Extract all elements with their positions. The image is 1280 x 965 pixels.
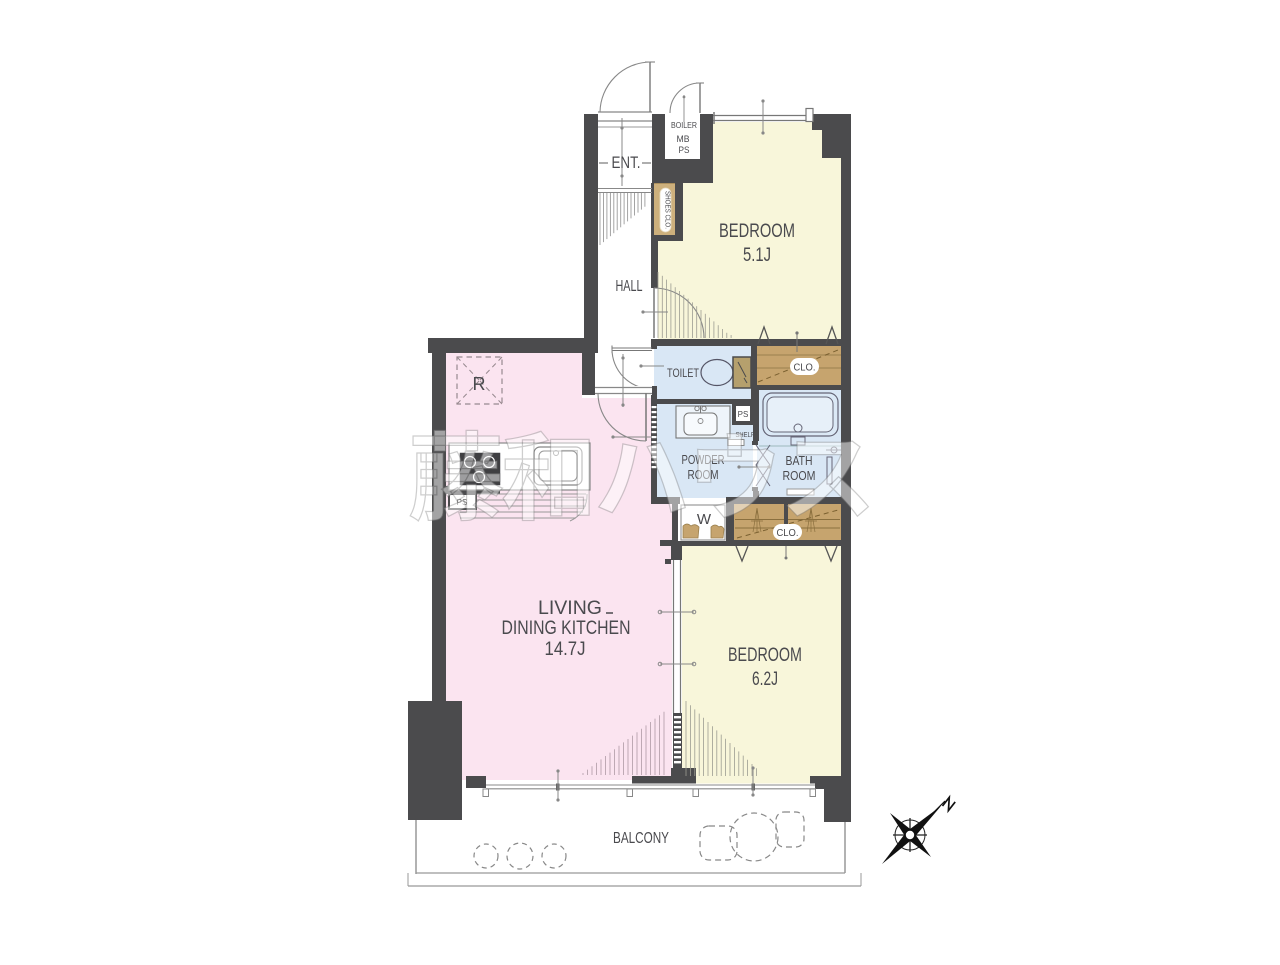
svg-text:6.2J: 6.2J [752, 669, 778, 690]
svg-text:DINING KITCHEN: DINING KITCHEN [502, 618, 631, 639]
svg-text:PS: PS [738, 410, 749, 419]
svg-text:ENT.: ENT. [612, 153, 641, 172]
svg-text:BEDROOM: BEDROOM [728, 645, 802, 666]
svg-text:PS: PS [679, 145, 690, 155]
svg-text:LIVING: LIVING [538, 598, 602, 619]
svg-text:CLO.: CLO. [777, 527, 799, 539]
svg-text:BOILER: BOILER [671, 120, 697, 130]
svg-text:BEDROOM: BEDROOM [719, 221, 795, 242]
svg-text:SHOES CLO.: SHOES CLO. [664, 191, 673, 229]
svg-text:HALL: HALL [616, 278, 643, 295]
svg-text:R: R [473, 374, 486, 394]
svg-text:ROOM: ROOM [783, 468, 816, 483]
svg-text:BALCONY: BALCONY [613, 830, 669, 847]
svg-text:W: W [697, 511, 712, 528]
svg-text:MB: MB [677, 134, 690, 144]
svg-text:CLO.: CLO. [794, 362, 816, 374]
svg-text:TOILET: TOILET [667, 368, 699, 380]
svg-text:5.1J: 5.1J [743, 245, 771, 266]
svg-text:14.7J: 14.7J [545, 639, 586, 660]
